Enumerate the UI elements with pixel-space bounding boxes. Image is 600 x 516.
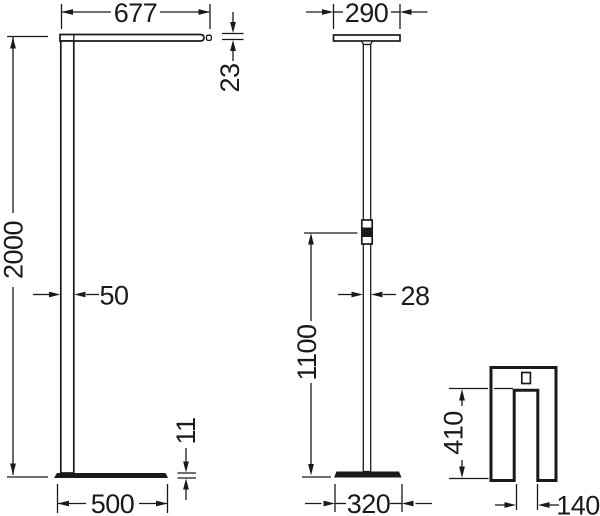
dimension-label: 28 <box>400 281 429 311</box>
arrowhead <box>58 501 70 507</box>
arrowhead <box>230 40 236 51</box>
pole-control-band <box>361 228 373 238</box>
dimension-label: 50 <box>99 281 128 311</box>
arrowhead <box>459 389 465 401</box>
arrowhead <box>183 462 189 473</box>
arrowhead <box>505 502 517 508</box>
dimension-label: 11 <box>171 417 201 444</box>
side-view: 290 28 1100 <box>292 0 432 516</box>
front-lamp-head <box>60 35 204 42</box>
arrowhead <box>308 233 314 245</box>
dimension-label: 677 <box>114 0 158 28</box>
dimension-label: 2000 <box>0 221 29 279</box>
arrowhead <box>324 501 336 507</box>
dim-front-head-width: 677 <box>62 0 211 29</box>
dimension-label: 410 <box>439 411 469 455</box>
arrowhead <box>199 9 211 15</box>
dimension-label: 1100 <box>292 324 322 380</box>
front-base-plate <box>54 473 168 478</box>
dimension-label: 500 <box>91 489 135 516</box>
arrowhead <box>402 501 414 507</box>
arrowhead <box>49 292 60 298</box>
side-base-plate <box>334 472 402 478</box>
arrowhead <box>183 479 189 490</box>
dim-side-control-height: 1100 <box>292 233 358 477</box>
arrowhead <box>10 37 16 49</box>
dimension-label: 320 <box>347 489 391 516</box>
dim-front-base-thickness: 11 <box>171 417 201 500</box>
dim-top-cutout-width: 140 <box>495 484 600 516</box>
pole-cross-section <box>522 373 531 384</box>
front-lamp-pole <box>61 41 74 473</box>
arrowhead <box>322 9 334 15</box>
arrowhead <box>230 22 236 33</box>
dim-front-head-thickness: 23 <box>215 12 245 93</box>
arrowhead <box>308 464 314 476</box>
arrowhead <box>62 9 74 15</box>
front-head-end-cap <box>207 35 212 40</box>
dim-front-base-length: 500 <box>58 484 168 516</box>
dim-front-pole-depth: 50 <box>33 281 129 311</box>
dimension-drawing-svg: 677 23 2000 50 <box>0 0 600 516</box>
arrowhead <box>371 292 383 298</box>
arrowhead <box>538 502 550 508</box>
dim-side-pole-width: 28 <box>338 281 430 311</box>
dim-side-head-depth: 290 <box>306 0 428 29</box>
dimension-label: 23 <box>215 63 245 92</box>
arrowhead <box>10 464 16 476</box>
dimension-label: 140 <box>556 491 600 516</box>
top-view: 410 140 <box>439 368 600 516</box>
side-lamp-head <box>334 35 401 41</box>
base-cutout <box>514 390 538 482</box>
arrowhead <box>352 292 364 298</box>
arrowhead <box>400 9 412 15</box>
dim-side-base-width: 320 <box>305 484 432 516</box>
arrowhead <box>459 467 465 479</box>
front-view: 677 23 2000 50 <box>0 0 245 516</box>
dimension-label: 290 <box>345 0 389 28</box>
technical-drawing: 677 23 2000 50 <box>0 0 600 516</box>
arrowhead <box>74 292 85 298</box>
dim-front-overall-height: 2000 <box>0 37 48 478</box>
arrowhead <box>156 501 168 507</box>
side-lamp-pole <box>363 45 370 472</box>
